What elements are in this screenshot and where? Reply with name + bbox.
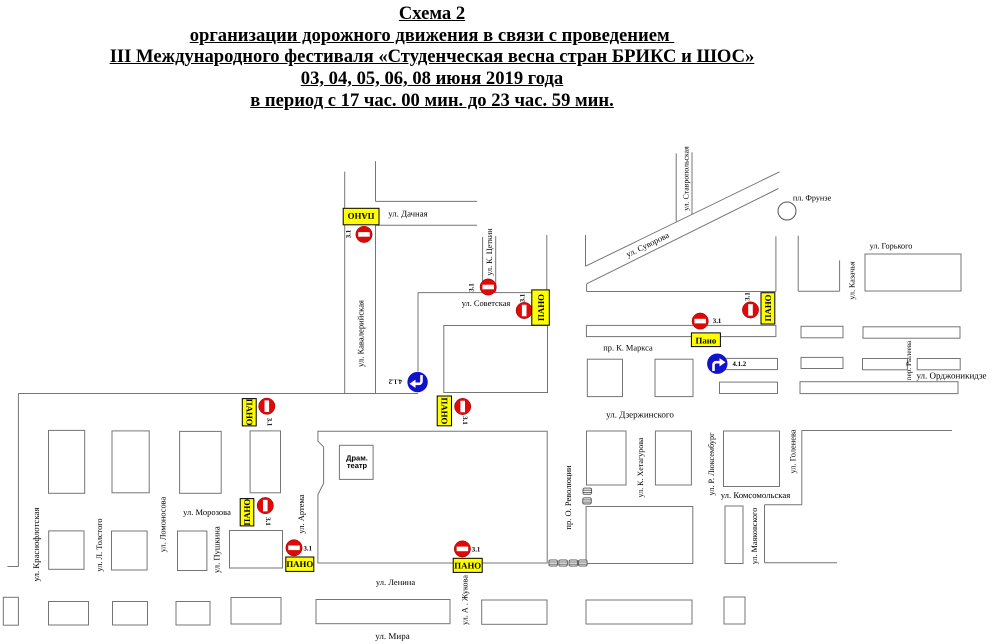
svg-text:ул. А . Жукова: ул. А . Жукова	[461, 575, 470, 625]
svg-text:ул. Р. Люксембург: ул. Р. Люксембург	[707, 432, 716, 496]
svg-text:ул. Пушкина: ул. Пушкина	[212, 526, 222, 573]
svg-text:3.1: 3.1	[304, 546, 313, 553]
svg-text:ул. Ломоносова: ул. Ломоносова	[159, 496, 168, 552]
svg-text:ул. Кавалерийская: ул. Кавалерийская	[356, 300, 366, 367]
svg-text:ул. К. Хетагурова: ул. К. Хетагурова	[636, 437, 645, 497]
svg-text:3.1: 3.1	[264, 517, 271, 526]
svg-text:4.1.2: 4.1.2	[733, 361, 747, 368]
svg-text:ПАНО: ПАНО	[242, 499, 252, 526]
svg-text:ул. Дзержинского: ул. Дзержинского	[606, 410, 674, 420]
svg-text:ул. Голенева: ул. Голенева	[789, 429, 798, 473]
svg-text:ул. Маяковского: ул. Маяковского	[750, 508, 759, 565]
svg-text:ПАНО: ПАНО	[439, 397, 449, 424]
svg-text:пр. К. Маркса: пр. К. Маркса	[603, 344, 653, 353]
svg-text:ПАНО: ПАНО	[763, 294, 773, 321]
svg-text:ул. Морозова: ул. Морозова	[183, 507, 231, 517]
svg-text:ул. Суворова: ул. Суворова	[624, 230, 670, 259]
svg-text:3.1: 3.1	[472, 546, 481, 553]
svg-text:пер. Рылеева: пер. Рылеева	[905, 340, 913, 380]
svg-text:ПАНО: ПАНО	[244, 399, 254, 426]
svg-text:ул. Л. Толстого: ул. Л. Толстого	[95, 518, 104, 571]
svg-text:3.1: 3.1	[713, 318, 722, 325]
svg-text:3.1: 3.1	[345, 229, 352, 238]
svg-text:ул. Ленина: ул. Ленина	[376, 577, 415, 587]
svg-text:ПАНО: ПАНО	[286, 559, 313, 569]
svg-text:театр: театр	[347, 461, 368, 470]
svg-text:3.1: 3.1	[461, 416, 468, 425]
svg-text:ул. Казачья: ул. Казачья	[848, 261, 857, 299]
svg-text:ул. Горького: ул. Горького	[870, 242, 913, 251]
svg-text:ул. Комсомольская: ул. Комсомольская	[721, 490, 791, 500]
svg-text:ул. Краснофлотская: ул. Краснофлотская	[31, 507, 41, 581]
svg-text:ул. Ставропольская: ул. Ставропольская	[682, 146, 691, 211]
svg-text:ул. К. Цеткин: ул. К. Цеткин	[485, 228, 494, 276]
svg-text:3.1: 3.1	[469, 283, 476, 292]
svg-text:ул. Артема: ул. Артема	[296, 494, 306, 533]
svg-text:3.1: 3.1	[266, 418, 273, 427]
svg-text:3.1: 3.1	[520, 293, 527, 302]
svg-text:ул. Орджоникидзе: ул. Орджоникидзе	[916, 371, 986, 381]
svg-text:Пано: Пано	[696, 336, 717, 346]
svg-text:ул. Дачная: ул. Дачная	[388, 209, 427, 219]
svg-text:ПАНО: ПАНО	[348, 211, 375, 221]
svg-text:ул. Мира: ул. Мира	[375, 631, 409, 641]
svg-text:3.1: 3.1	[745, 292, 752, 301]
svg-text:ПАНО: ПАНО	[536, 294, 546, 321]
svg-text:ул. Советская: ул. Советская	[462, 299, 511, 308]
svg-text:ПАНО: ПАНО	[454, 561, 481, 571]
svg-text:пл. Фрунзе: пл. Фрунзе	[793, 194, 832, 203]
svg-text:пр. О. Революции: пр. О. Революции	[563, 465, 573, 530]
svg-text:4.1.2: 4.1.2	[388, 377, 402, 384]
